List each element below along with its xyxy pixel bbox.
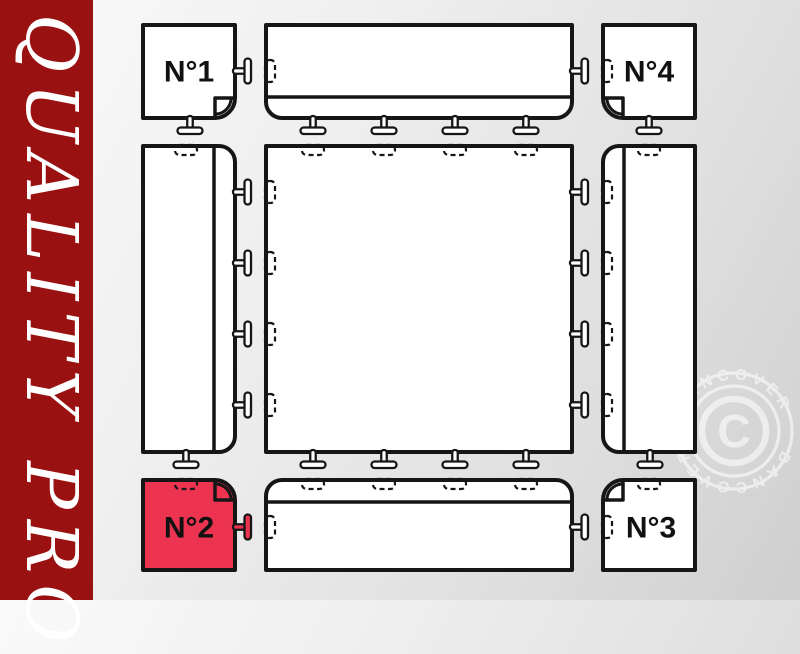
tile-top-edge — [265, 25, 588, 134]
quality-pro-banner: QUALITY PRO — [0, 0, 93, 600]
tile-left-edge — [143, 145, 251, 468]
tile-center — [265, 145, 588, 468]
tile-corner-2-highlighted: N°2 — [143, 479, 251, 570]
tile-label-n4: N°4 — [624, 56, 675, 89]
product-diagram-page: { "banner": { "text": "QUALITY PRO", "bg… — [0, 0, 800, 600]
floor-tile-assembly-diagram: DANCOVER DANCOVER C N°1 N°4 — [0, 0, 800, 600]
tile-corner-4: N°4 — [602, 25, 695, 134]
tile-label-n3: N°3 — [626, 512, 676, 545]
copyright-c-glyph: C — [717, 405, 750, 457]
tile-corner-3: N°3 — [602, 479, 695, 570]
tile-corner-1: N°1 — [143, 25, 251, 134]
tile-bottom-edge — [265, 479, 588, 570]
tile-right-edge — [602, 145, 695, 468]
tile-label-n1: N°1 — [164, 56, 214, 89]
tile-label-n2: N°2 — [164, 512, 214, 545]
quality-pro-banner-text: QUALITY PRO — [16, 14, 87, 654]
